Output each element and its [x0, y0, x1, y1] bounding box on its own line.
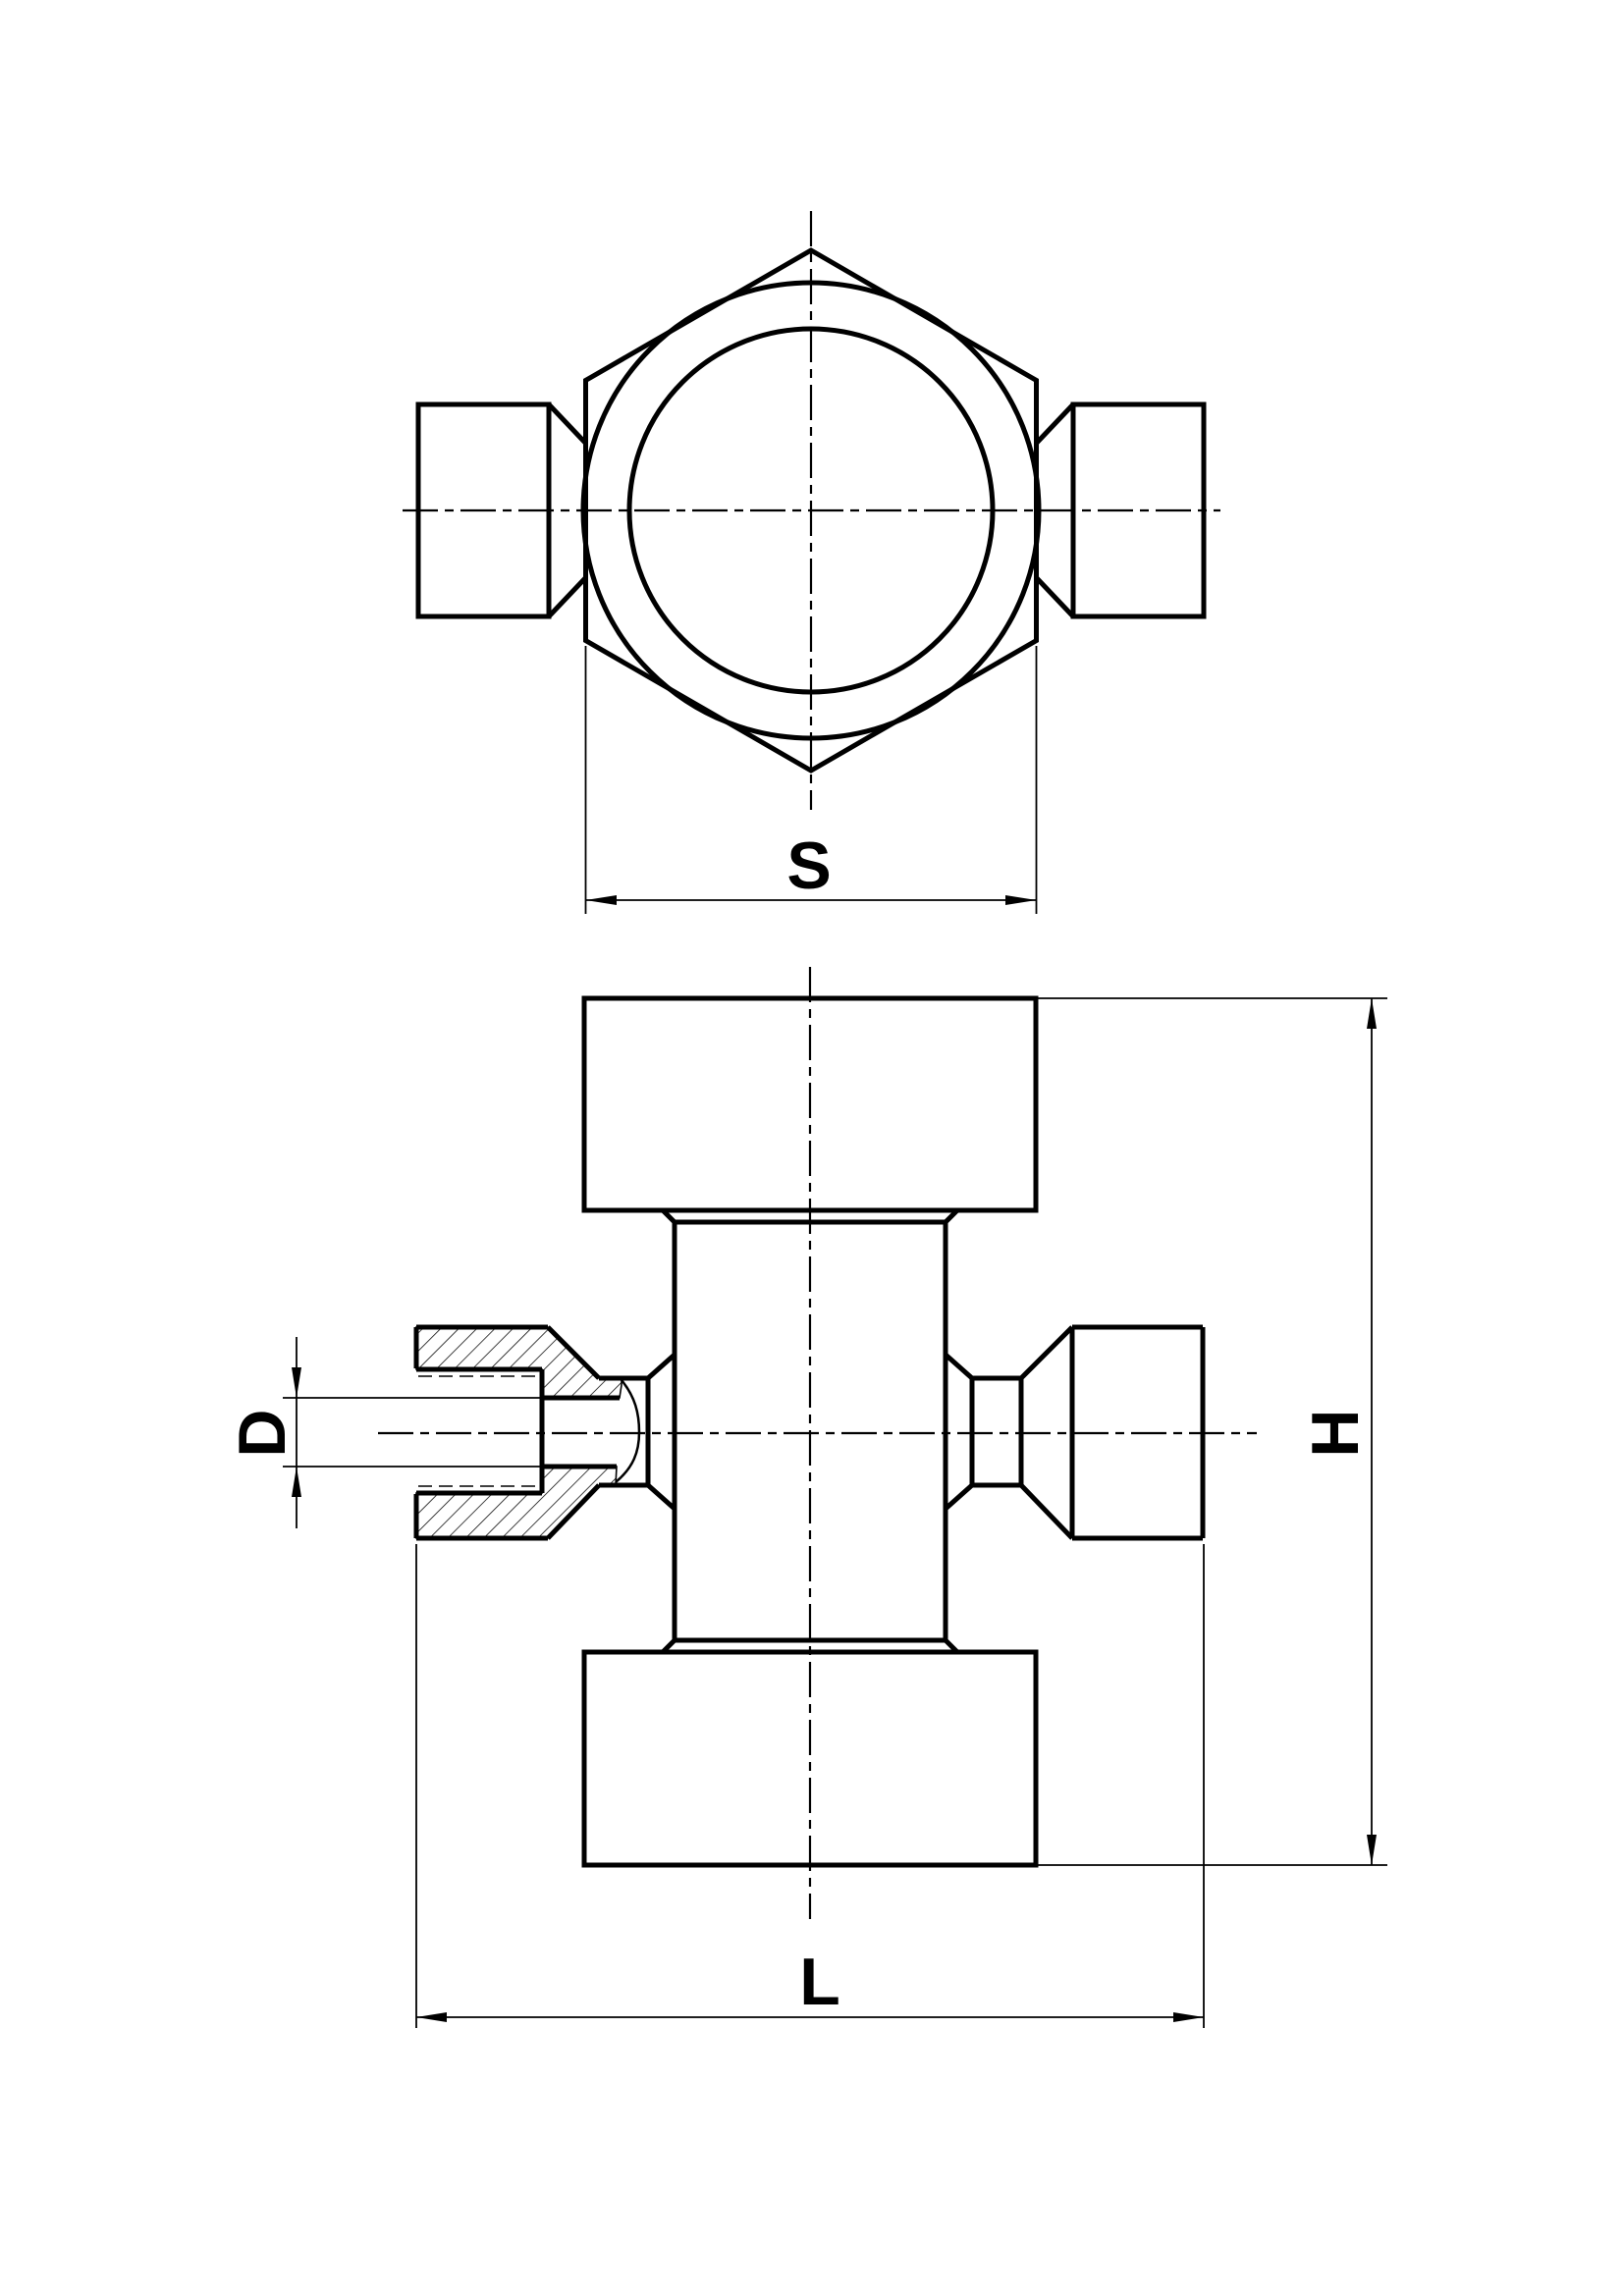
left-boss-cone-upper — [549, 404, 586, 444]
left-port-hatch-upper — [416, 1327, 622, 1398]
right-boss-cone-lower — [1037, 578, 1074, 617]
dim-h-label: H — [1298, 1409, 1373, 1457]
front-view-centerlines — [378, 967, 1257, 1919]
dim-d-label: D — [225, 1409, 299, 1457]
dim-l-label: L — [799, 1945, 840, 2019]
dim-s-arrow-left — [586, 895, 618, 905]
dim-h-arrow-bottom — [1367, 1835, 1377, 1865]
dim-s-arrow-right — [1005, 895, 1037, 905]
right-boss-cone-upper — [1037, 404, 1074, 444]
top-view: S — [403, 211, 1220, 914]
dim-l-arrow-right — [1173, 2012, 1204, 2022]
front-view: D H L — [225, 967, 1387, 2028]
dimension-h: H — [1036, 998, 1387, 1865]
top-view-centerlines — [403, 211, 1220, 810]
left-port-hatch-lower — [416, 1467, 617, 1538]
left-boss-top-view — [418, 404, 586, 616]
dim-s-label: S — [786, 828, 831, 903]
drawing-sheet: S — [0, 0, 1623, 2296]
engineering-drawing: S — [0, 0, 1623, 2296]
counterbore-outline — [416, 1369, 542, 1493]
dim-h-arrow-top — [1367, 998, 1377, 1029]
dim-d-arrow-top — [292, 1367, 301, 1398]
dim-d-arrow-bottom — [292, 1467, 301, 1497]
thread-lines — [418, 1376, 542, 1486]
dim-l-arrow-left — [416, 2012, 447, 2022]
left-boss-cone-lower — [549, 578, 586, 617]
